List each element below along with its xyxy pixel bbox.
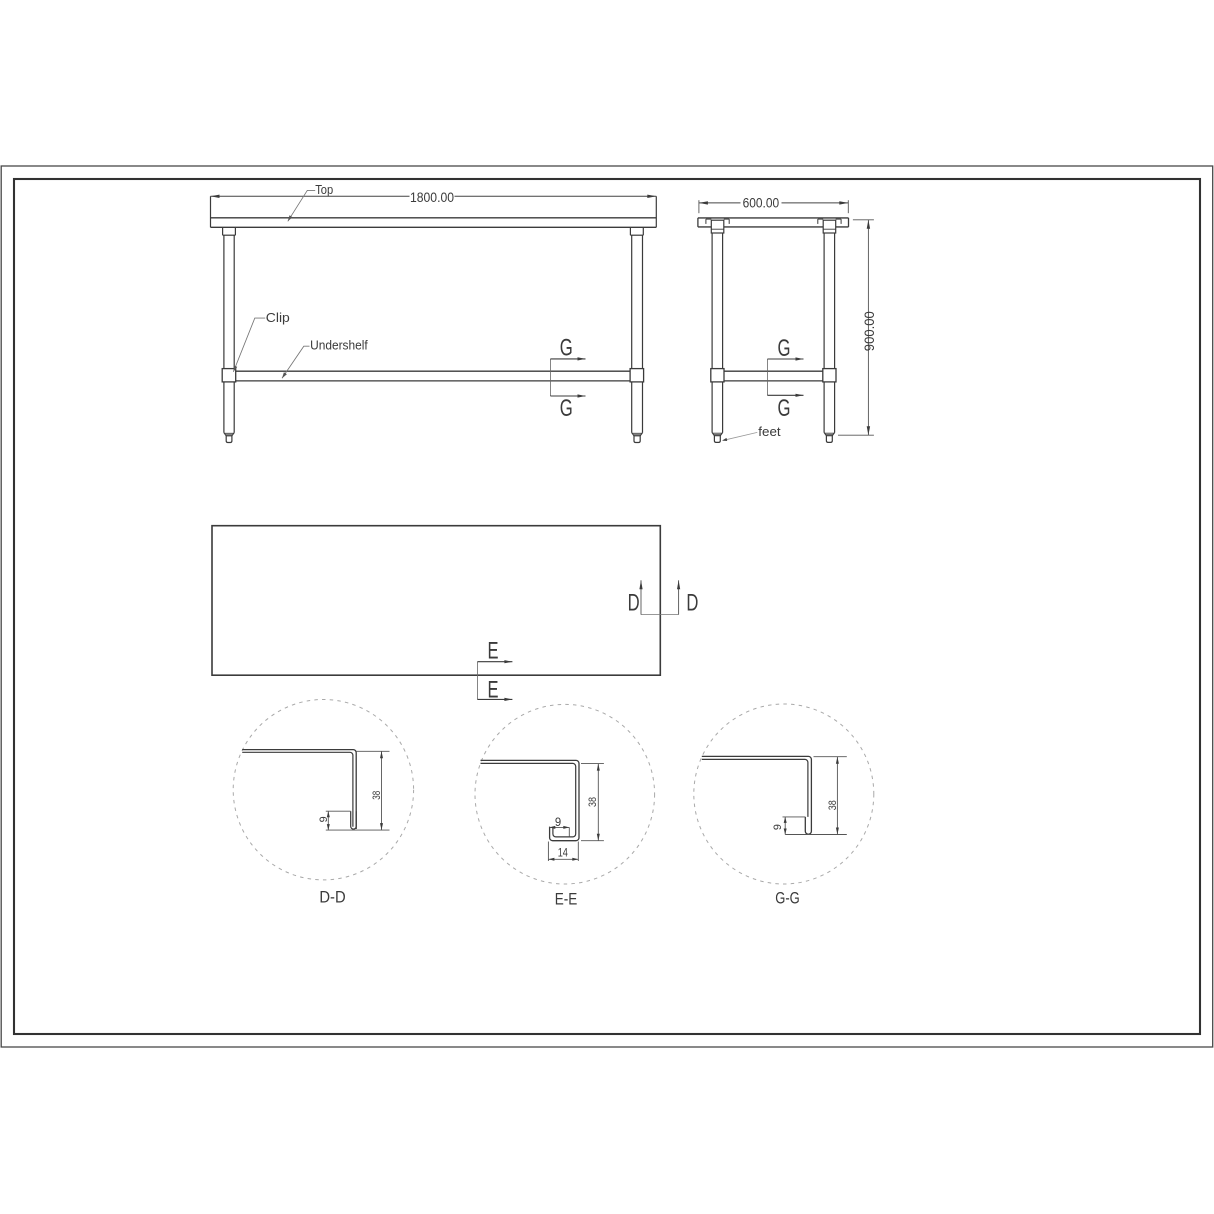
svg-text:D: D — [628, 590, 640, 616]
svg-text:600.00: 600.00 — [743, 196, 780, 211]
svg-text:G: G — [778, 396, 791, 422]
svg-text:D-D: D-D — [319, 889, 345, 907]
svg-text:38: 38 — [587, 797, 599, 807]
svg-text:G: G — [560, 396, 573, 422]
svg-text:14: 14 — [558, 846, 569, 860]
svg-text:G: G — [560, 336, 573, 362]
svg-text:38: 38 — [827, 800, 839, 810]
svg-text:38: 38 — [371, 791, 383, 800]
svg-text:900.00: 900.00 — [862, 311, 877, 351]
svg-text:D: D — [686, 590, 698, 616]
svg-text:Undershelf: Undershelf — [310, 339, 368, 353]
svg-text:E: E — [488, 677, 499, 703]
svg-text:9: 9 — [318, 816, 330, 822]
svg-text:9: 9 — [555, 815, 561, 829]
svg-text:E: E — [488, 639, 499, 665]
svg-text:1800.00: 1800.00 — [410, 190, 454, 205]
svg-text:Top: Top — [315, 183, 333, 197]
svg-text:9: 9 — [772, 824, 784, 830]
svg-text:Clip: Clip — [266, 311, 290, 325]
svg-text:feet: feet — [758, 425, 781, 439]
svg-text:G: G — [778, 336, 791, 362]
svg-text:E-E: E-E — [555, 891, 578, 909]
svg-text:G-G: G-G — [775, 890, 800, 908]
